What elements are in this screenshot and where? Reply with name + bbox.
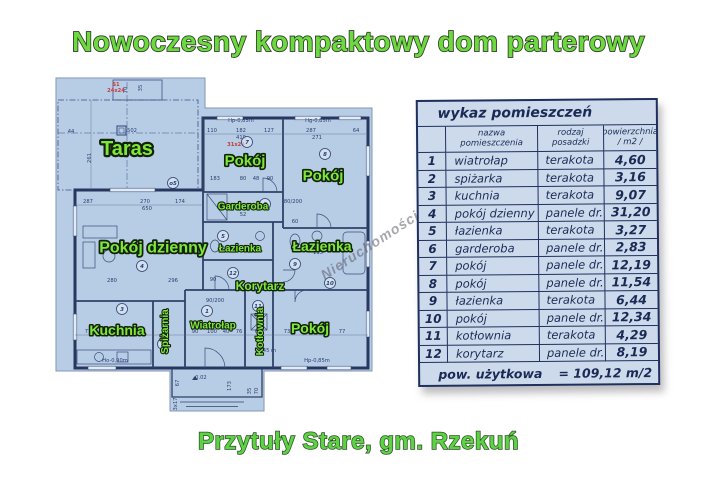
room-number: 6: [419, 240, 447, 258]
dimension-label: 70: [254, 388, 260, 395]
room-floor-type: panele dr.: [539, 256, 605, 274]
room-area: 8,19: [606, 343, 658, 361]
dimension-label: 67: [175, 380, 181, 387]
room-number: 11: [420, 328, 448, 346]
red-annotation: 24x24: [107, 88, 125, 94]
room-name: korytarz: [448, 344, 540, 362]
header-name: nazwa pomieszczenia: [446, 126, 538, 153]
room-number: 10: [420, 310, 448, 328]
room-name: kuchnia: [447, 187, 539, 205]
room-floor-type: panele dr.: [540, 309, 606, 327]
room-area: 4,29: [606, 326, 658, 344]
dimension-label: 52: [240, 212, 247, 218]
dimension-label: Hp-0,85m: [304, 358, 330, 364]
room-floor-type: terakota: [538, 151, 604, 169]
room-number-text: 1: [205, 309, 209, 315]
room-area: 4,60: [604, 151, 656, 169]
dimension-label: 77: [339, 329, 346, 335]
dimension-label: 48: [253, 176, 260, 182]
dimension-label: 64: [353, 128, 360, 134]
dimension-label: 296: [168, 278, 178, 284]
dimension-label: 271: [312, 135, 322, 141]
header-floor: rodzaj posadzki: [538, 125, 604, 152]
room-floor-type: terakota: [538, 169, 604, 187]
room-number-text: 5: [221, 234, 225, 240]
room-name: spiżarka: [446, 169, 538, 187]
room-label: Spiżarnia: [160, 309, 171, 354]
dimension-label: Hp-0,85m: [228, 118, 254, 124]
location-caption: Przytuły Stare, gm. Rzekuń: [0, 428, 717, 456]
room-label: Kuchnia: [89, 322, 144, 338]
table-footer: pow. użytkowa = 109,12 m/2: [420, 361, 658, 385]
dimension-label: 173: [227, 381, 233, 391]
dimension-label: 44: [68, 129, 75, 135]
room-label: Pokój: [225, 152, 266, 169]
room-number-text: 3: [120, 307, 124, 313]
footer-label: pow. użytkowa: [438, 365, 542, 381]
dimension-label: 270: [140, 199, 150, 205]
room-area: 12,34: [606, 308, 658, 326]
room-floor-type: panele dr.: [539, 274, 605, 292]
dimension-label: Hg-0,85m: [305, 118, 331, 124]
room-number-text: 9: [293, 262, 297, 268]
room-name: pokój: [447, 257, 539, 275]
dimension-label: 287: [306, 128, 316, 134]
table-header: nazwa pomieszczenia rodzaj posadzki powi…: [418, 125, 656, 153]
room-label: Pokój: [291, 320, 329, 336]
dimension-label: -0.02: [193, 375, 206, 381]
room-floor-type: terakota: [539, 291, 605, 309]
room-area: 9,07: [605, 186, 657, 204]
dimension-label: 90: [267, 176, 274, 182]
room-floor-type: terakota: [539, 186, 605, 204]
dimension-label: 80/200: [284, 199, 302, 205]
room-floor-type: panele dr.: [539, 239, 605, 257]
room-name: łazienka: [447, 222, 539, 240]
table-title: wykaz pomieszczeń: [418, 100, 656, 127]
room-label: Kotłownia: [255, 307, 266, 355]
room-area: 6,44: [605, 291, 657, 309]
room-floor-type: terakota: [540, 326, 606, 344]
room-number: 2: [418, 170, 446, 188]
room-number-text: 8: [323, 152, 327, 158]
header-area: powierzchnia / m2 /: [604, 125, 656, 151]
room-number: 5: [419, 223, 447, 241]
dimension-label: 76: [236, 329, 243, 335]
room-label: Łazienka: [219, 244, 262, 255]
dimension-label: 182: [236, 128, 246, 134]
room-number: 7: [419, 258, 447, 276]
dimension-label: 3x17: [173, 398, 179, 411]
room-number: 12: [420, 345, 448, 363]
room-floor-type: panele dr.: [539, 204, 605, 222]
room-number: 4: [419, 205, 447, 223]
dimension-label: 110: [207, 128, 217, 134]
dimension-label: 60: [292, 219, 299, 225]
dimension-label: 35: [138, 85, 144, 92]
floor-plan-drawing: 50226144703511018212728764419271Hp-0,85m…: [55, 76, 383, 414]
dimension-label: 183: [210, 176, 220, 182]
dimension-label: 127: [264, 128, 274, 134]
room-name: garderoba: [447, 239, 539, 257]
room-number: 8: [419, 275, 447, 293]
room-label: Garderoba: [218, 202, 269, 213]
dimension-label: 261: [87, 153, 93, 163]
header-no: [418, 127, 446, 153]
room-label: Korytarz: [236, 279, 285, 293]
room-name: łazienka: [447, 292, 539, 310]
room-area: 11,54: [605, 273, 657, 291]
dimension-label: Ho-0,90m: [102, 358, 128, 364]
dimension-label: 73: [284, 329, 291, 335]
room-floor-type: panele dr.: [540, 344, 606, 362]
dimension-label: 35: [247, 388, 253, 395]
dimension-label: 502: [127, 128, 137, 134]
room-number: 1: [418, 153, 446, 171]
page-title: Nowoczesny kompaktowy dom parterowy: [0, 26, 717, 58]
room-table-body: 1wiatrołapterakota4,602spiżarkaterakota3…: [418, 151, 658, 363]
footer-value: = 109,12 m/2: [558, 365, 652, 381]
room-label: Pokój: [303, 167, 344, 184]
room-table: wykaz pomieszczeń nazwa pomieszczenia ro…: [416, 98, 660, 387]
room-name: pokój: [448, 309, 540, 327]
room-label: Taras: [101, 138, 153, 160]
room-label: Pokój dzienny: [99, 240, 207, 257]
room-number-text: 4: [140, 264, 144, 270]
room-area: 12,19: [605, 256, 657, 274]
floor-plan: 50226144703511018212728764419271Hp-0,85m…: [55, 76, 383, 414]
dimension-label: 174: [175, 199, 186, 205]
room-number-text: 7: [245, 140, 249, 146]
room-area: 31,20: [605, 203, 657, 221]
room-floor-type: terakota: [539, 221, 605, 239]
room-label: Wiatrołap: [190, 321, 235, 332]
room-area: 3,16: [604, 168, 656, 186]
dimension-label: 90/200: [206, 298, 224, 304]
dimension-label: 90: [210, 277, 217, 283]
room-name: kotłownia: [448, 327, 540, 345]
room-number-text: o5: [169, 181, 177, 187]
room-area: 2,83: [605, 238, 657, 256]
dimension-label: 280: [107, 278, 117, 284]
dimension-label: 650: [142, 206, 152, 212]
room-name: pokój: [447, 274, 539, 292]
dimension-label: 80: [240, 176, 247, 182]
room-area: 3,27: [605, 221, 657, 239]
room-number: 9: [419, 293, 447, 311]
dimension-label: 287: [83, 199, 93, 205]
room-number: 3: [419, 188, 447, 206]
room-name: wiatrołap: [446, 152, 538, 170]
room-number-text: 12: [229, 271, 237, 277]
room-name: pokój dzienny: [447, 204, 539, 222]
